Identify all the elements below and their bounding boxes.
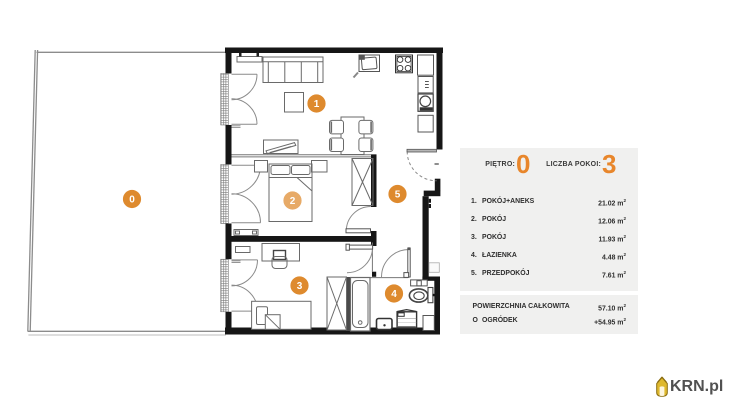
svg-text:3: 3 bbox=[297, 281, 303, 292]
svg-text:0: 0 bbox=[129, 195, 135, 206]
svg-text:5: 5 bbox=[395, 190, 401, 201]
svg-text:4: 4 bbox=[391, 289, 397, 300]
svg-text:1: 1 bbox=[314, 99, 320, 110]
svg-text:2: 2 bbox=[290, 196, 296, 207]
